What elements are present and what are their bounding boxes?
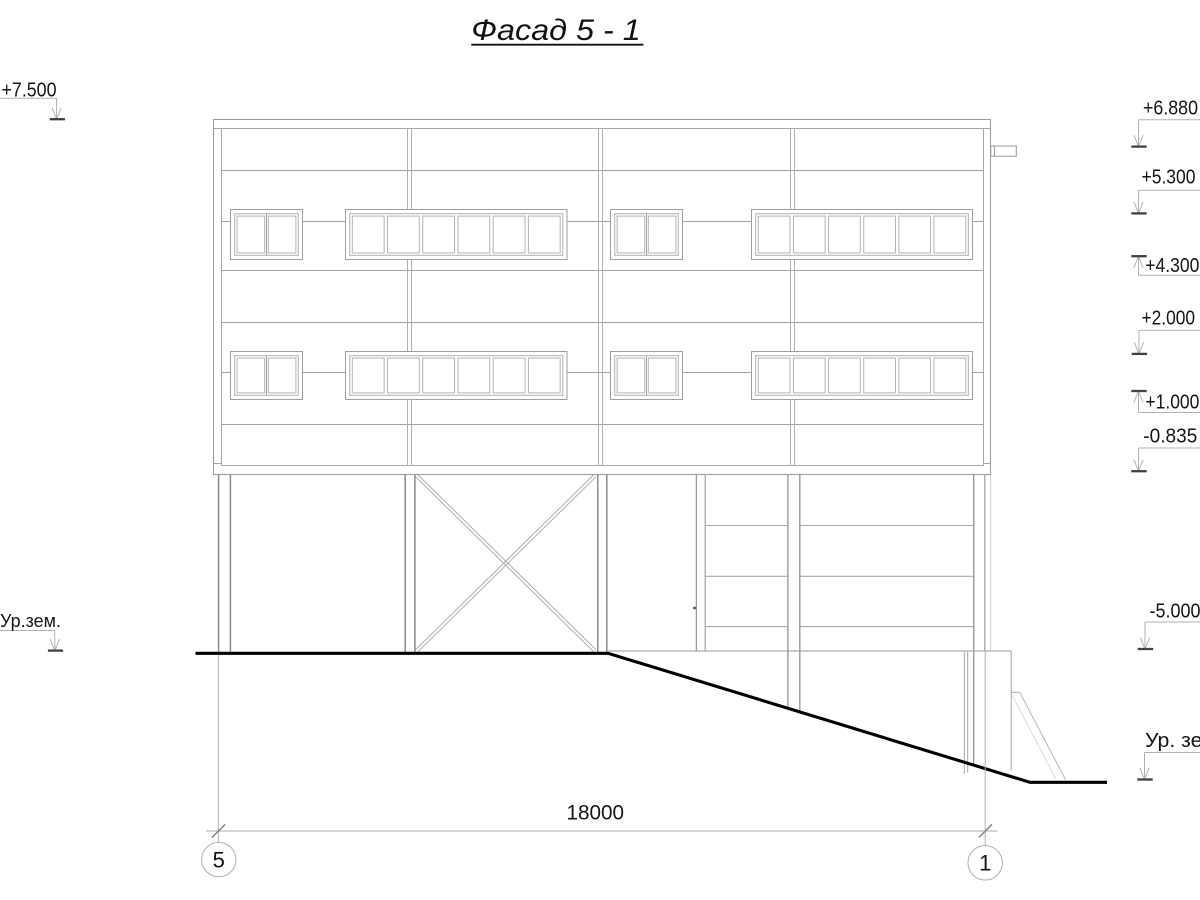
svg-text:Ур.зем.: Ур.зем. (0, 610, 61, 631)
svg-text:+2.000: +2.000 (1142, 308, 1196, 330)
svg-text:+1.000: +1.000 (1145, 391, 1199, 413)
svg-text:-0.835: -0.835 (1143, 425, 1197, 447)
svg-text:Фасад 5 - 1: Фасад 5 - 1 (471, 14, 641, 47)
svg-text:1: 1 (979, 851, 991, 876)
svg-text:5: 5 (213, 848, 225, 873)
svg-text:-5.000: -5.000 (1150, 601, 1200, 623)
svg-text:18000: 18000 (567, 802, 625, 825)
svg-text:+4.300: +4.300 (1145, 255, 1199, 277)
svg-text:+7.500: +7.500 (2, 79, 57, 101)
svg-text:Ур. зем.: Ур. зем. (1145, 730, 1200, 752)
svg-text:+5.300: +5.300 (1142, 167, 1196, 189)
svg-text:+6.880: +6.880 (1143, 98, 1198, 120)
